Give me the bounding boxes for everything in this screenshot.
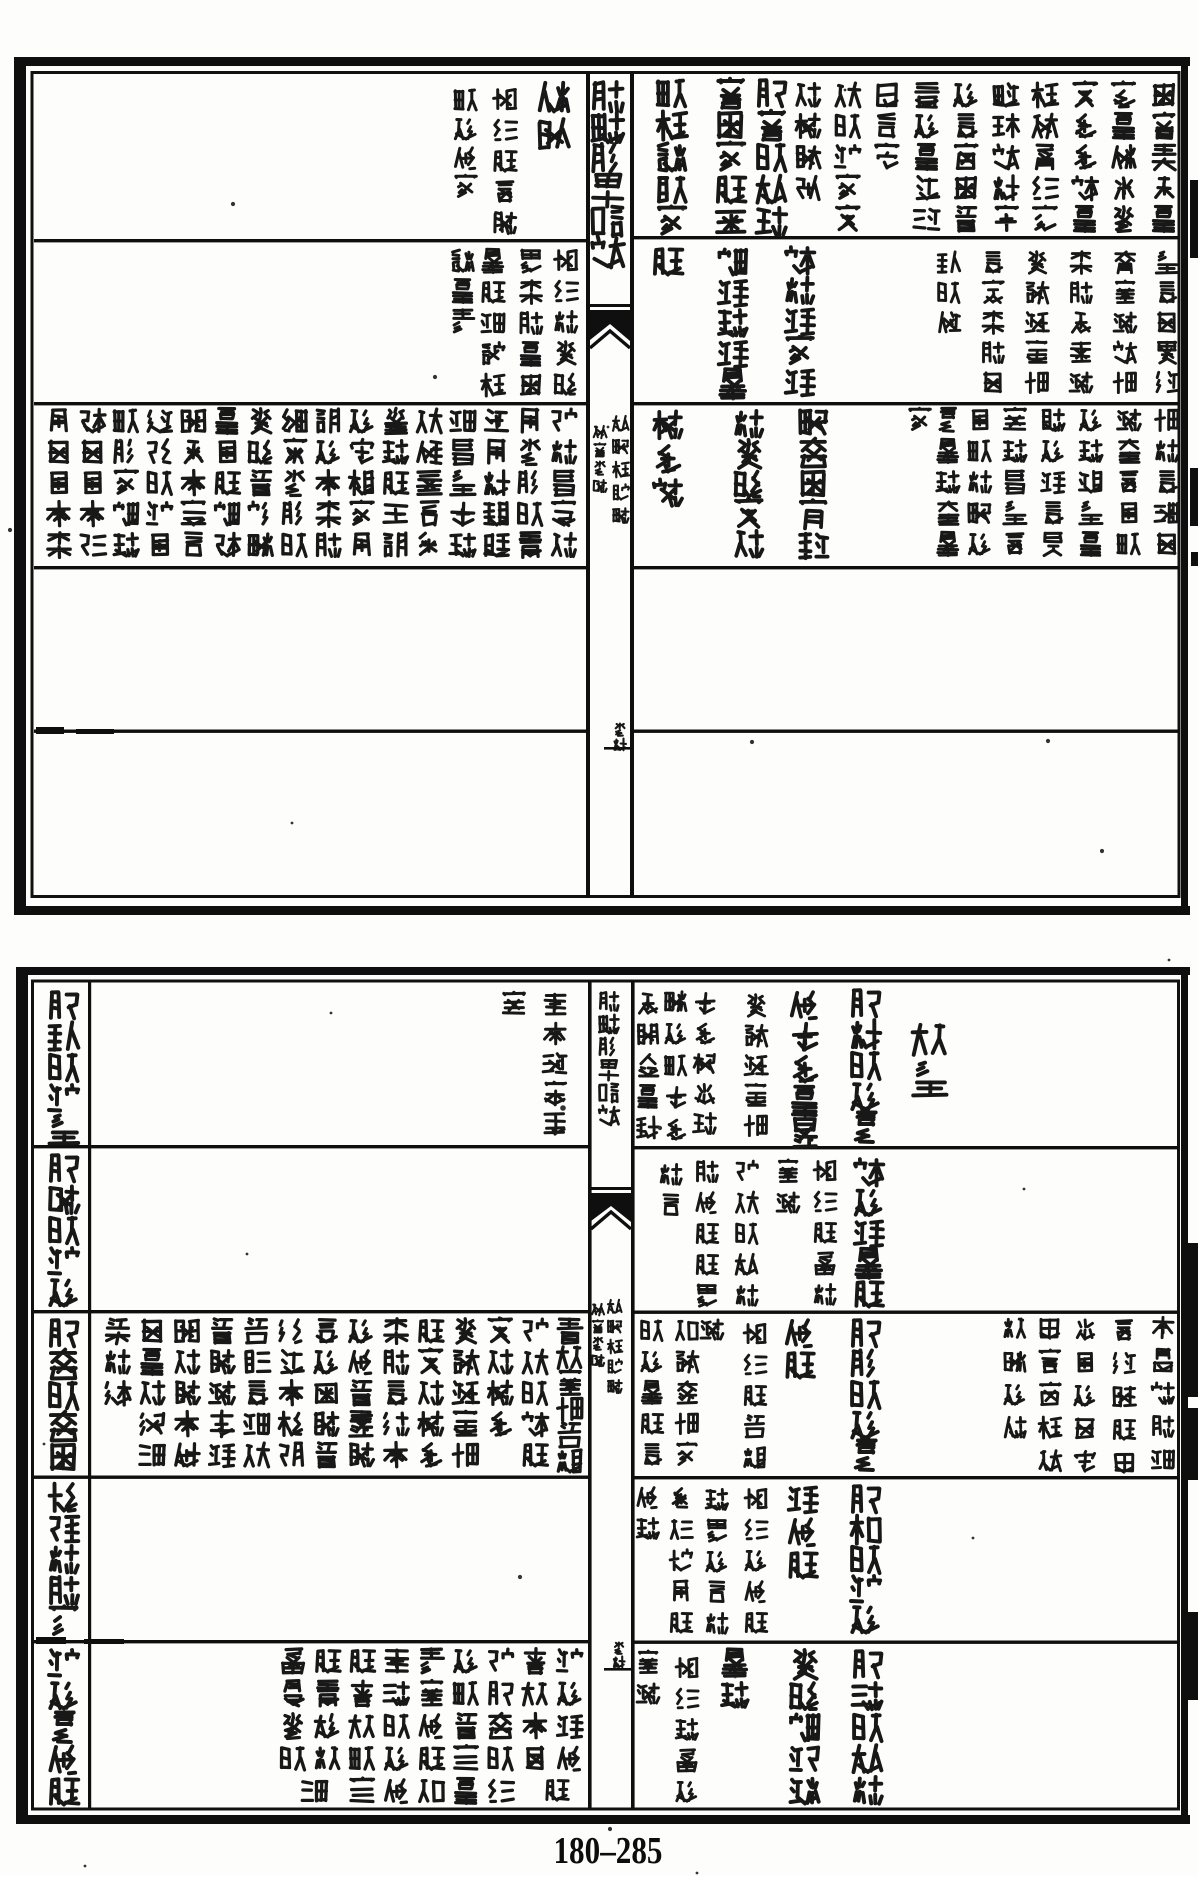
svg-text:180–285: 180–285 (553, 1829, 662, 1872)
